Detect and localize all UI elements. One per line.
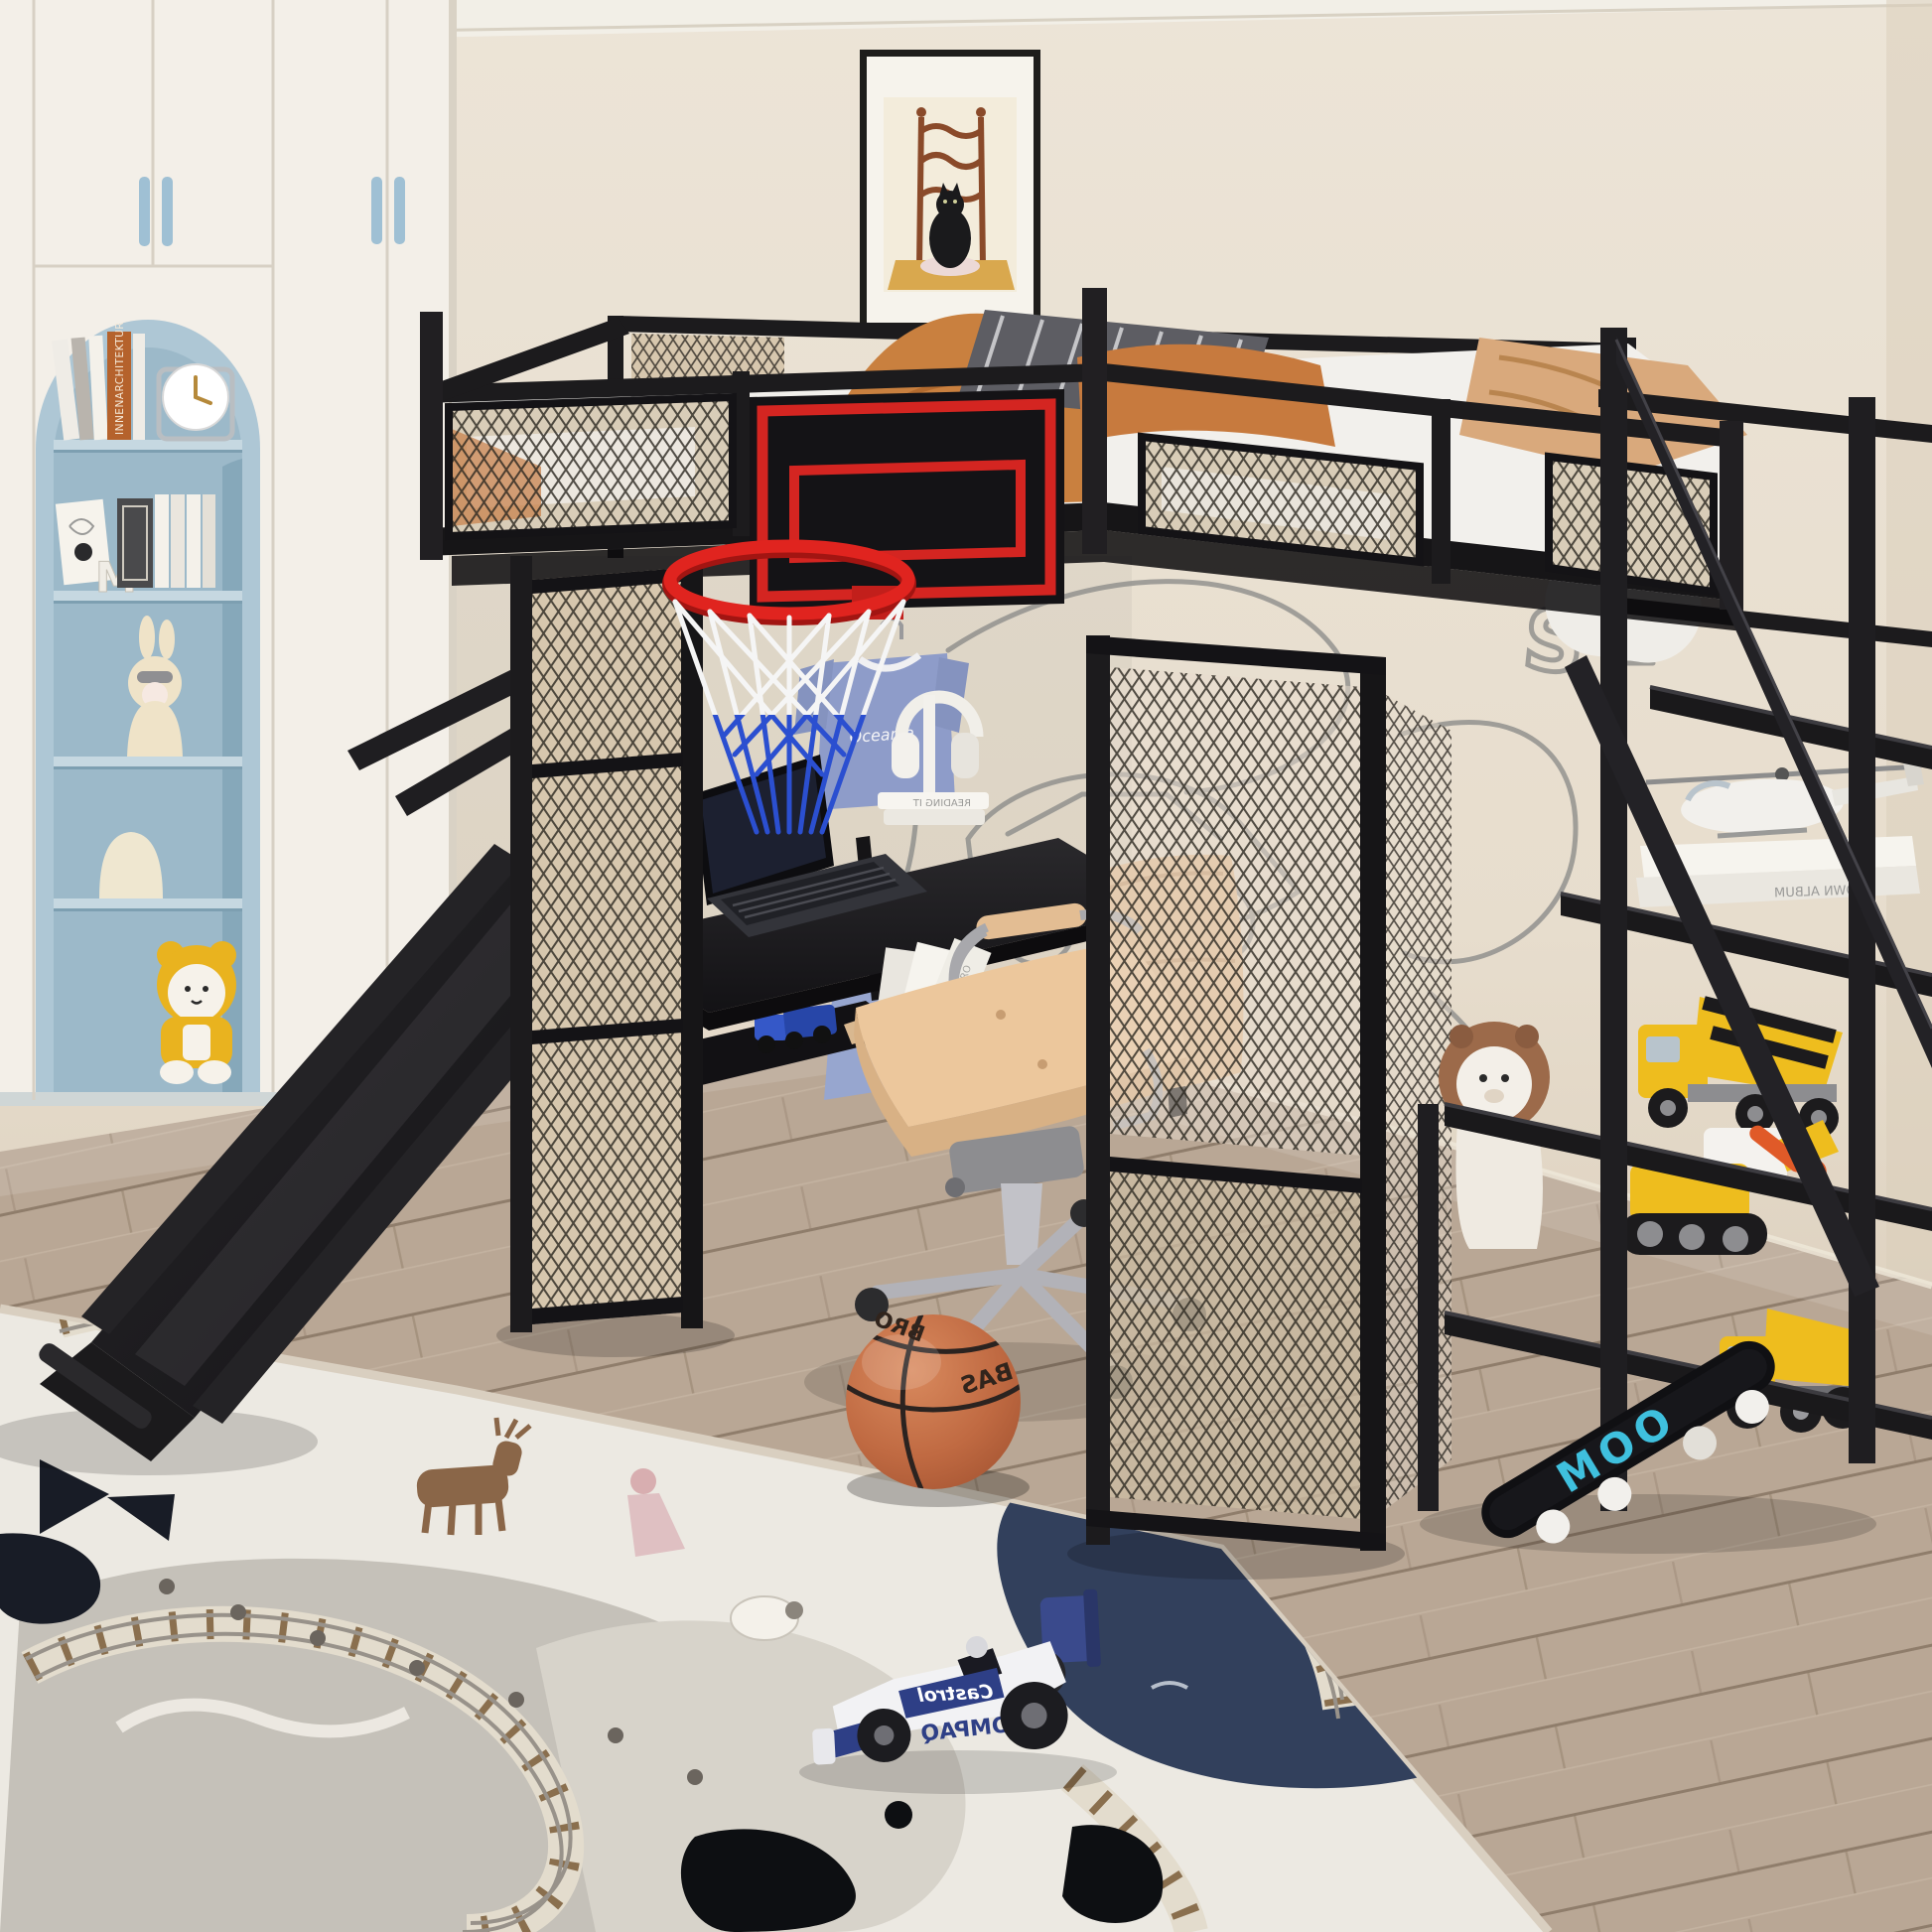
room-render: S <box>0 0 1932 1932</box>
guard-mesh-window-left <box>449 397 733 536</box>
yellow-bear-plush <box>157 941 236 1084</box>
car-side-text: Castrol <box>916 1681 994 1707</box>
stair-post-left <box>1418 1104 1439 1511</box>
wall-corner-shade <box>1886 0 1932 1330</box>
kids-room-scene: S <box>0 0 1932 1932</box>
desk-books-text: READING IT <box>912 798 971 809</box>
wardrobe: INNENARCHITEKTUR M <box>0 0 457 1106</box>
framed-cat-picture <box>860 50 1040 330</box>
rug-sheep <box>731 1596 798 1640</box>
left-mesh-tower <box>510 556 703 1332</box>
niche-books-row: INNENARCHITEKTUR <box>52 322 145 441</box>
stair-post-mid <box>1600 328 1627 1511</box>
center-mesh-tower <box>1086 635 1451 1551</box>
niche-shelf: INNENARCHITEKTUR M <box>36 320 260 1092</box>
book-spine-text: INNENARCHITEKTUR <box>114 322 126 435</box>
